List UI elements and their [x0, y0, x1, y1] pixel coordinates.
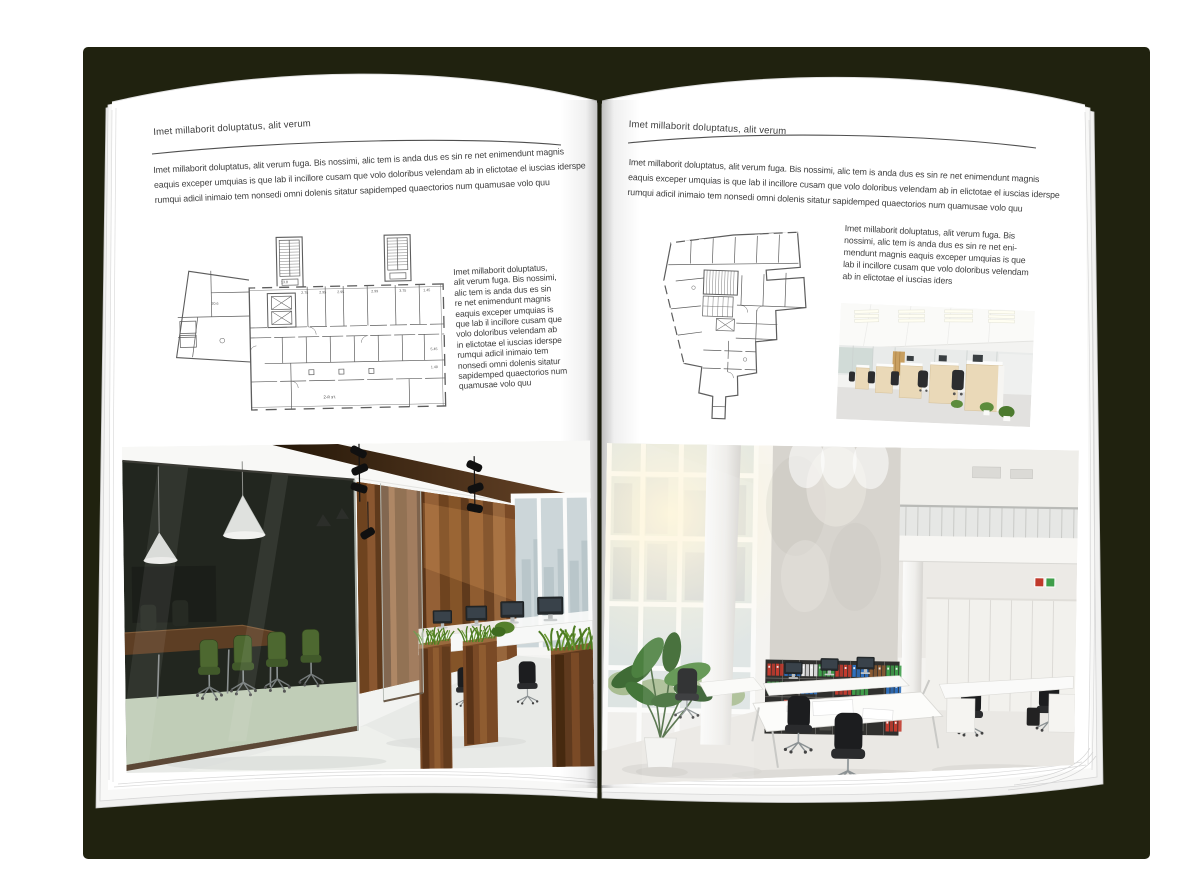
glass-meeting-room	[122, 458, 360, 771]
svg-text:1.40: 1.40	[431, 365, 438, 369]
caption-text: Imet millaborit doluptatus, alit verum f…	[453, 262, 568, 392]
svg-text:2.99: 2.99	[371, 289, 378, 293]
waste-bin	[1027, 708, 1040, 726]
svg-text:2.75: 2.75	[301, 291, 308, 295]
header-rule	[628, 131, 1040, 153]
safety-sign	[1046, 578, 1055, 587]
stair-core	[702, 270, 738, 331]
elevator-core	[267, 293, 296, 328]
glass-partition	[381, 483, 424, 702]
svg-text:3.75: 3.75	[399, 289, 406, 293]
office-photo-atrium	[602, 443, 1079, 792]
svg-text:2.95: 2.95	[337, 290, 344, 294]
office-photo-loft	[122, 440, 595, 773]
plan-dimension-labels: 2.75 2.95 2.95 2.99 3.75 1.45 13.8 20.6 …	[211, 277, 438, 402]
svg-text:20.6: 20.6	[211, 302, 218, 306]
floor-plan-drawing: 2.75 2.95 2.95 2.99 3.75 1.45 13.8 20.6 …	[154, 228, 454, 418]
floor-plan-drawing	[641, 216, 844, 429]
caption-text: Imet millaborit doluptatus, alit verum f…	[842, 222, 1030, 290]
stair-tower	[384, 235, 411, 282]
concrete-wall	[764, 443, 902, 662]
svg-text:13.8: 13.8	[281, 280, 288, 284]
svg-text:1.45: 1.45	[423, 288, 430, 292]
svg-text:2.95: 2.95	[319, 290, 326, 294]
svg-text:5.45: 5.45	[430, 347, 437, 351]
floor-label: 2-й эт.	[323, 394, 336, 399]
office-photo-small	[836, 303, 1035, 427]
safety-sign	[1035, 578, 1044, 587]
